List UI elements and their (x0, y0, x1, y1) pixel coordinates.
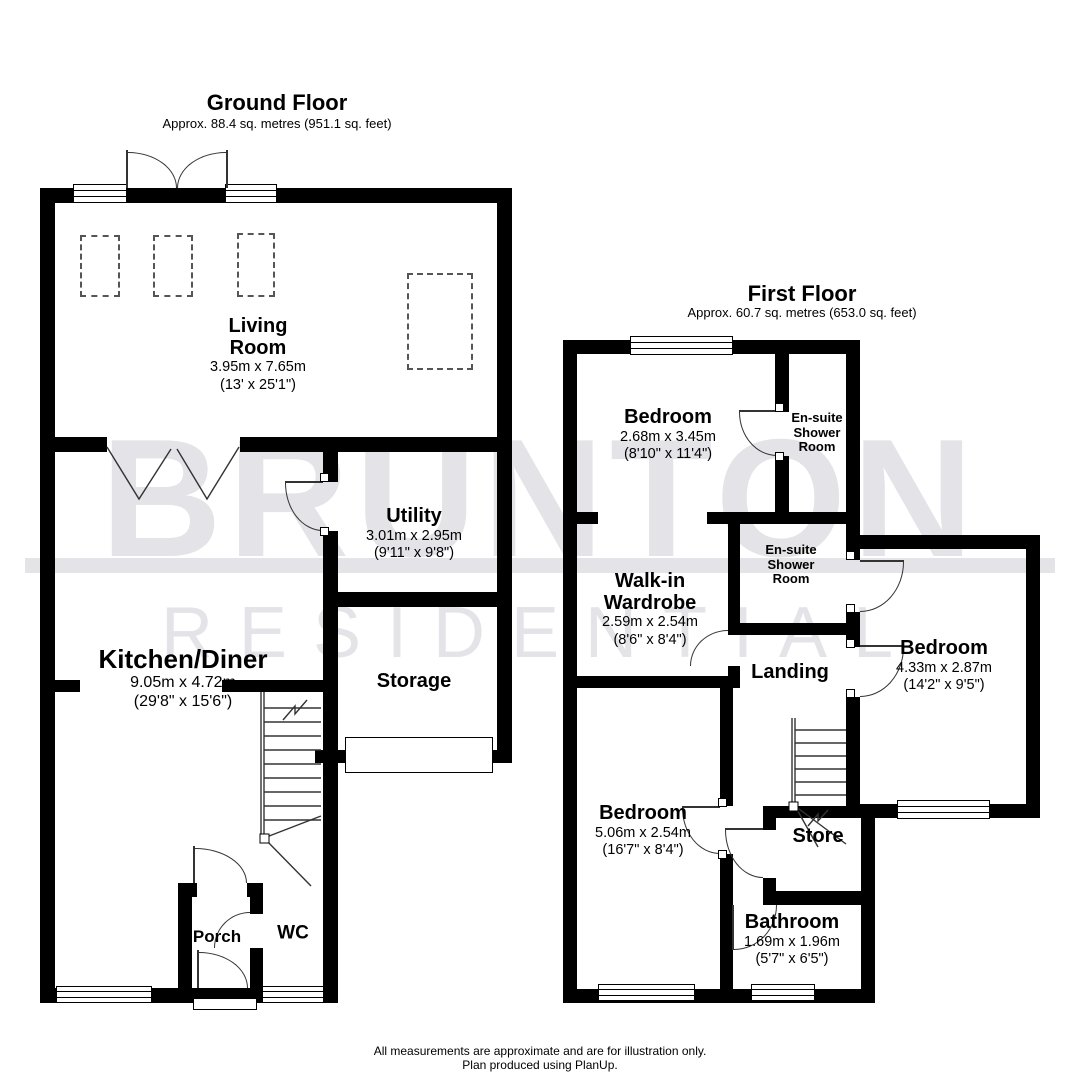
wall (707, 512, 860, 524)
dashed-furniture (237, 233, 275, 297)
dashed-furniture (80, 235, 120, 297)
room-label-bathroom: Bathroom 1.69m x 1.96m (5'7" x 6'5") (744, 912, 840, 968)
room-label-bedroom3: Bedroom 5.06m x 2.54m (16'7" x 8'4") (595, 803, 691, 859)
room-label-ensuite2: En-suite Shower Room (755, 543, 827, 587)
wall (338, 592, 512, 607)
dashed-furniture (153, 235, 193, 297)
wall (178, 883, 192, 1003)
window (598, 984, 695, 1001)
wall (728, 524, 740, 635)
window (262, 986, 324, 1003)
door-threshold (193, 998, 257, 1010)
room-label-bedroom1: Bedroom 2.68m x 3.45m (8'10" x 11'4") (620, 407, 716, 463)
wall (563, 340, 577, 1003)
wall (40, 188, 55, 1003)
room-label-storage: Storage (377, 671, 451, 693)
door-arc (195, 848, 247, 883)
door-jamb (320, 527, 329, 536)
room-label-porch: Porch (193, 928, 241, 946)
wall (323, 531, 338, 1003)
door-jamb (718, 798, 727, 807)
room-label-walk-in-wardrobe: Walk-in Wardrobe 2.59m x 2.54m (8'6" x 8… (589, 571, 711, 649)
wall (1026, 535, 1040, 818)
wall (40, 437, 107, 452)
door-arc (177, 152, 226, 188)
room-label-ensuite1: En-suite Shower Room (781, 411, 853, 455)
wall (728, 623, 860, 635)
window (751, 984, 815, 1001)
window (73, 184, 127, 203)
door-jamb (846, 639, 855, 648)
dashed-furniture (407, 273, 473, 370)
floorplan-page: BRUNTON RESIDENTIAL Ground Floor Approx.… (0, 0, 1080, 1080)
window (225, 184, 277, 203)
first-floor-title: First Floor (748, 281, 857, 307)
staircase (253, 690, 323, 890)
wall (775, 891, 875, 905)
bifold-doors (103, 439, 243, 507)
room-label-living-room: Living Room 3.95m x 7.65m (13' x 25'1") (210, 316, 306, 394)
wall (861, 818, 875, 1003)
wall (563, 676, 733, 688)
door-jamb (846, 604, 855, 613)
door-leaf (226, 150, 228, 188)
ground-floor-subtitle: Approx. 88.4 sq. metres (951.1 sq. feet) (162, 116, 391, 131)
door-jamb (846, 551, 855, 560)
wall (563, 512, 598, 524)
wall (40, 680, 80, 692)
door-jamb (320, 473, 329, 482)
window (630, 336, 733, 355)
window (56, 986, 152, 1003)
first-floor-subtitle: Approx. 60.7 sq. metres (653.0 sq. feet) (687, 305, 916, 320)
footer-line1: All measurements are approximate and are… (374, 1044, 707, 1058)
footer-line2: Plan produced using PlanUp. (374, 1058, 707, 1072)
door-jamb (846, 689, 855, 698)
wall (497, 188, 512, 763)
wall (240, 437, 512, 452)
ground-floor-title: Ground Floor (207, 90, 348, 116)
door-arc (199, 952, 248, 988)
room-label-kitchen-diner: Kitchen/Diner 9.05m x 4.72m (29'8" x 15'… (98, 645, 267, 711)
room-label-utility: Utility 3.01m x 2.95m (9'11" x 9'8") (366, 506, 462, 562)
door-arc (128, 152, 177, 188)
room-label-wc: WC (277, 924, 309, 945)
room-label-store: Store (792, 826, 843, 848)
door-jamb (718, 850, 727, 859)
wall (763, 806, 776, 830)
window (897, 800, 990, 819)
wall (846, 535, 1040, 549)
footer-disclaimer: All measurements are approximate and are… (374, 1044, 707, 1073)
wall (720, 688, 733, 806)
room-label-landing: Landing (751, 662, 829, 684)
room-label-bedroom2: Bedroom 4.33m x 2.87m (14'2" x 9'5") (896, 638, 992, 694)
storage-unit (345, 737, 493, 773)
